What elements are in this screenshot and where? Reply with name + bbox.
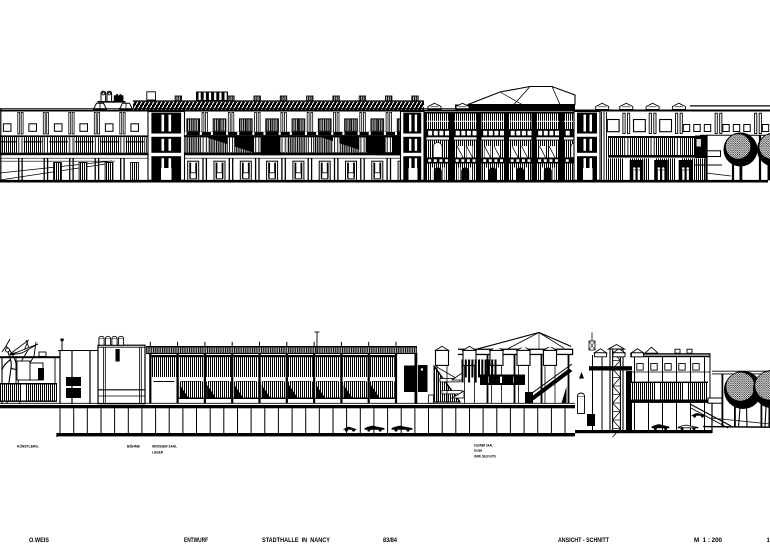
svg-text:1: 1 — [767, 538, 770, 544]
svg-text:M 1 : 200: M 1 : 200 — [694, 538, 723, 544]
svg-text:ENTWURF: ENTWURF — [184, 538, 208, 544]
svg-text:LAGER: LAGER — [152, 451, 164, 455]
svg-text:VERW. DIELPLATTE: VERW. DIELPLATTE — [474, 455, 496, 459]
svg-text:FOYER: FOYER — [474, 449, 482, 453]
svg-text:KLEINER SAAL: KLEINER SAAL — [474, 444, 493, 448]
svg-text:O.WEIS: O.WEIS — [29, 538, 49, 544]
svg-text:ANSICHT - SCHNITT: ANSICHT - SCHNITT — [558, 538, 609, 544]
svg-text:83/84: 83/84 — [383, 538, 398, 544]
svg-text:BÜHNE: BÜHNE — [127, 444, 141, 449]
svg-text:STADTHALLE IN NANCY: STADTHALLE IN NANCY — [262, 538, 330, 544]
svg-text:GROSSER SAAL: GROSSER SAAL — [152, 445, 177, 449]
svg-text:KÜNSTLERG.: KÜNSTLERG. — [17, 444, 39, 449]
